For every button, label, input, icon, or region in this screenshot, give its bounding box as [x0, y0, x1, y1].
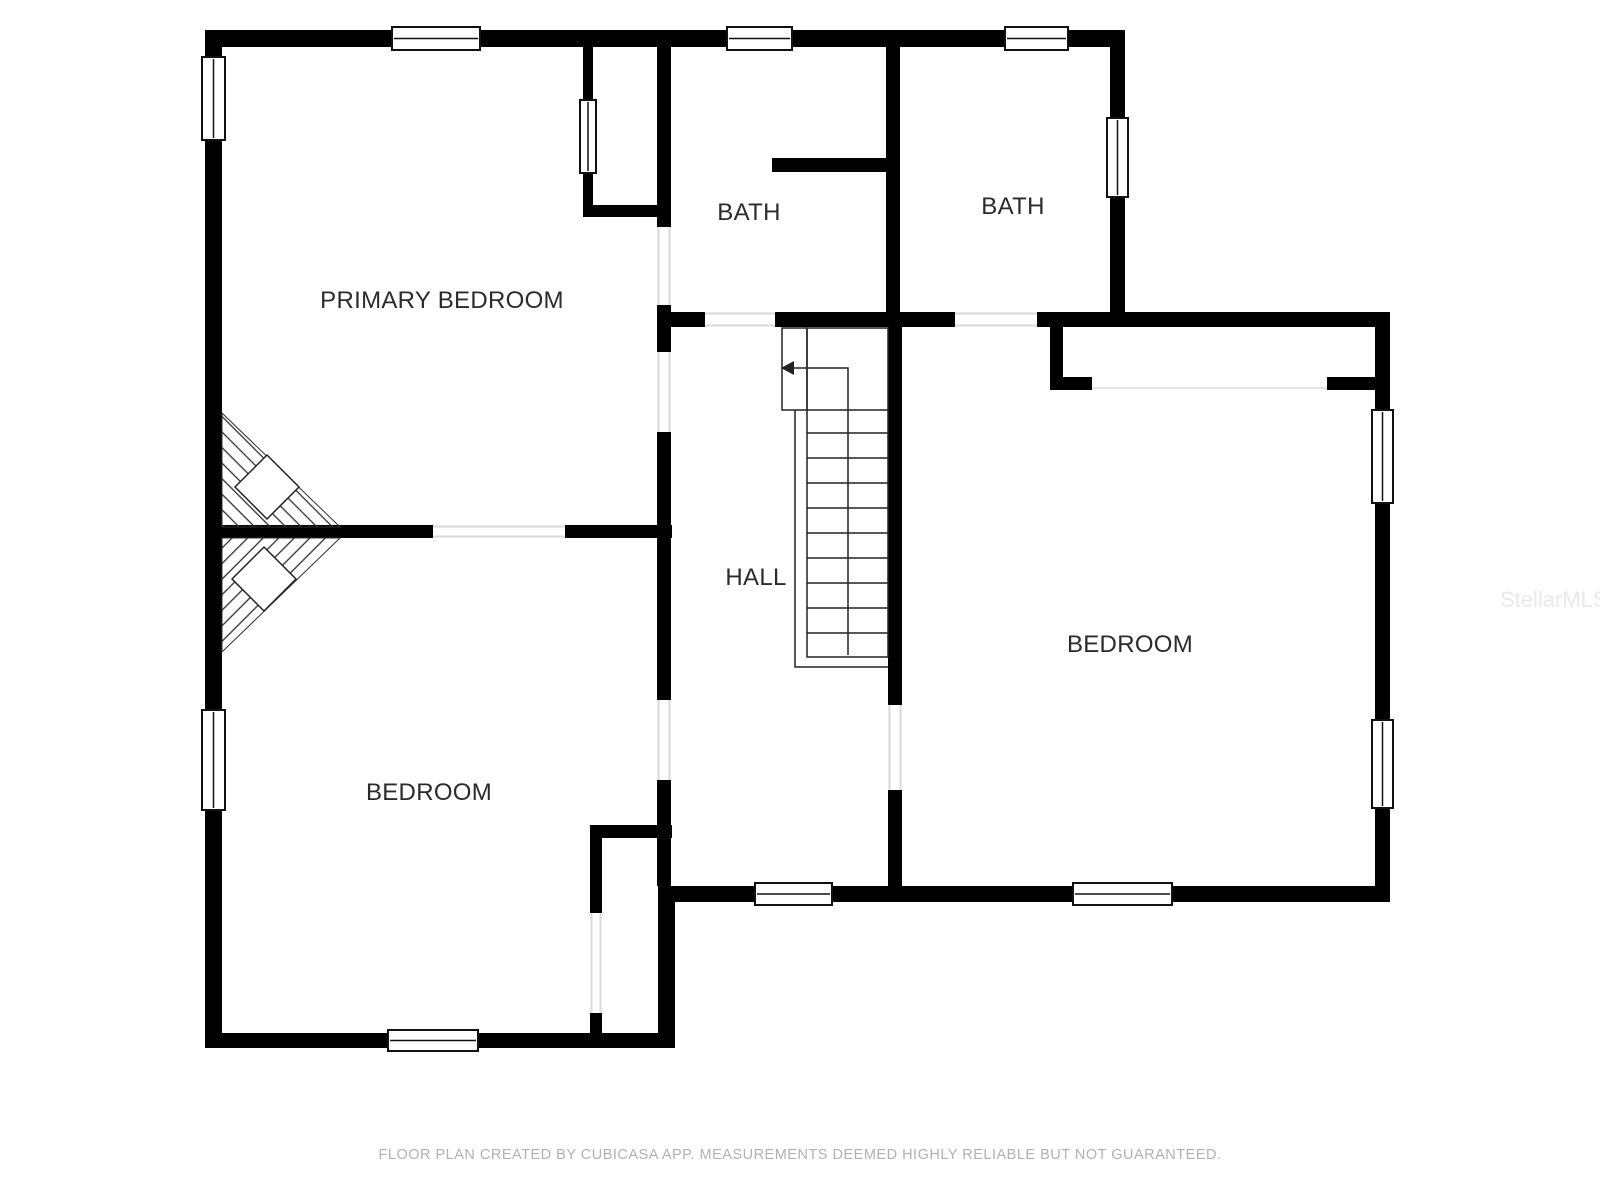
window	[727, 27, 792, 50]
room-label-bath-2: BATH	[981, 193, 1044, 221]
window	[1107, 118, 1128, 197]
footer-disclaimer: FLOOR PLAN CREATED BY CUBICASA APP. MEAS…	[0, 1147, 1600, 1163]
stairs	[781, 328, 888, 667]
window	[1073, 883, 1172, 905]
room-label-bedroom-bottom-left: BEDROOM	[366, 779, 492, 807]
room-label-bedroom-right: BEDROOM	[1067, 631, 1193, 659]
window	[1372, 410, 1393, 503]
watermark-stellar-mls: StellarMLS	[1500, 587, 1600, 613]
window	[755, 883, 832, 905]
window	[580, 100, 596, 173]
window	[202, 57, 225, 140]
room-label-bath-1: BATH	[717, 199, 780, 227]
room-label-primary-bedroom: PRIMARY BEDROOM	[320, 287, 564, 315]
floor-plan-image: PRIMARY BEDROOM BATH BATH HALL BEDROOM B…	[0, 0, 1600, 1200]
window	[1372, 720, 1393, 808]
window	[388, 1030, 478, 1051]
room-label-hall: HALL	[725, 564, 786, 592]
window	[202, 710, 225, 810]
floor-plan-drawing	[0, 0, 1600, 1200]
window	[392, 27, 480, 50]
window	[1005, 27, 1068, 50]
